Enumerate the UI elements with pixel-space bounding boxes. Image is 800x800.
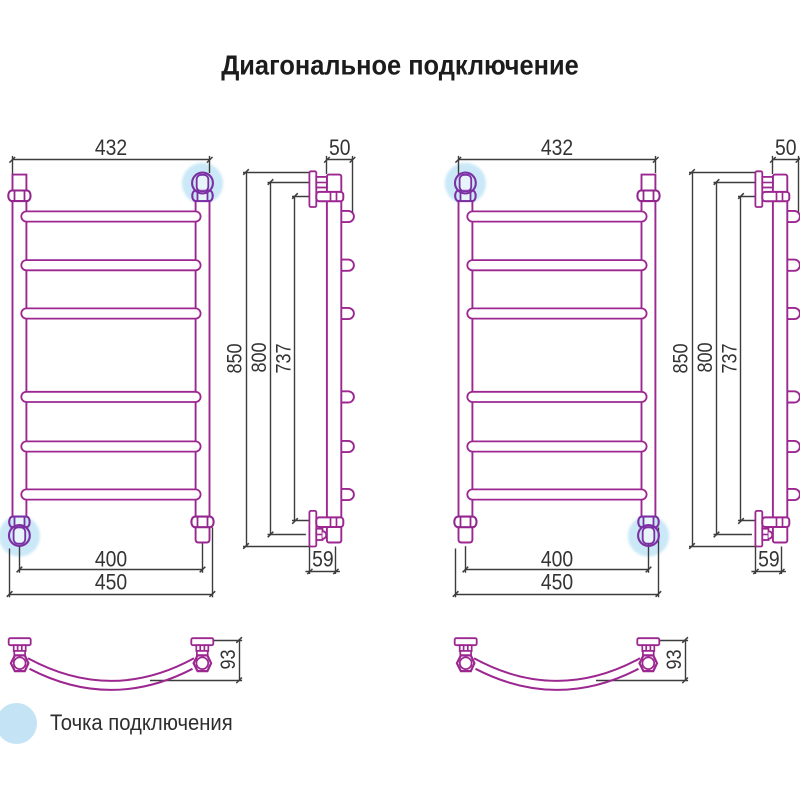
svg-text:59: 59 [758, 547, 780, 572]
svg-text:450: 450 [95, 570, 127, 595]
svg-text:850: 850 [669, 343, 693, 373]
svg-text:850: 850 [223, 343, 247, 373]
svg-text:Точка подключения: Точка подключения [50, 711, 233, 735]
svg-text:737: 737 [718, 343, 742, 373]
svg-text:400: 400 [95, 547, 127, 572]
svg-text:800: 800 [694, 342, 718, 372]
svg-text:93: 93 [216, 649, 240, 669]
svg-text:50: 50 [329, 136, 351, 161]
svg-text:59: 59 [312, 547, 334, 572]
svg-text:Диагональное подключение: Диагональное подключение [221, 49, 579, 80]
svg-text:400: 400 [541, 547, 573, 572]
svg-text:432: 432 [95, 136, 127, 161]
svg-text:800: 800 [248, 342, 272, 372]
svg-text:450: 450 [541, 570, 573, 595]
svg-text:50: 50 [775, 136, 797, 161]
svg-text:432: 432 [541, 136, 573, 161]
svg-text:737: 737 [272, 343, 296, 373]
svg-text:93: 93 [662, 649, 686, 669]
